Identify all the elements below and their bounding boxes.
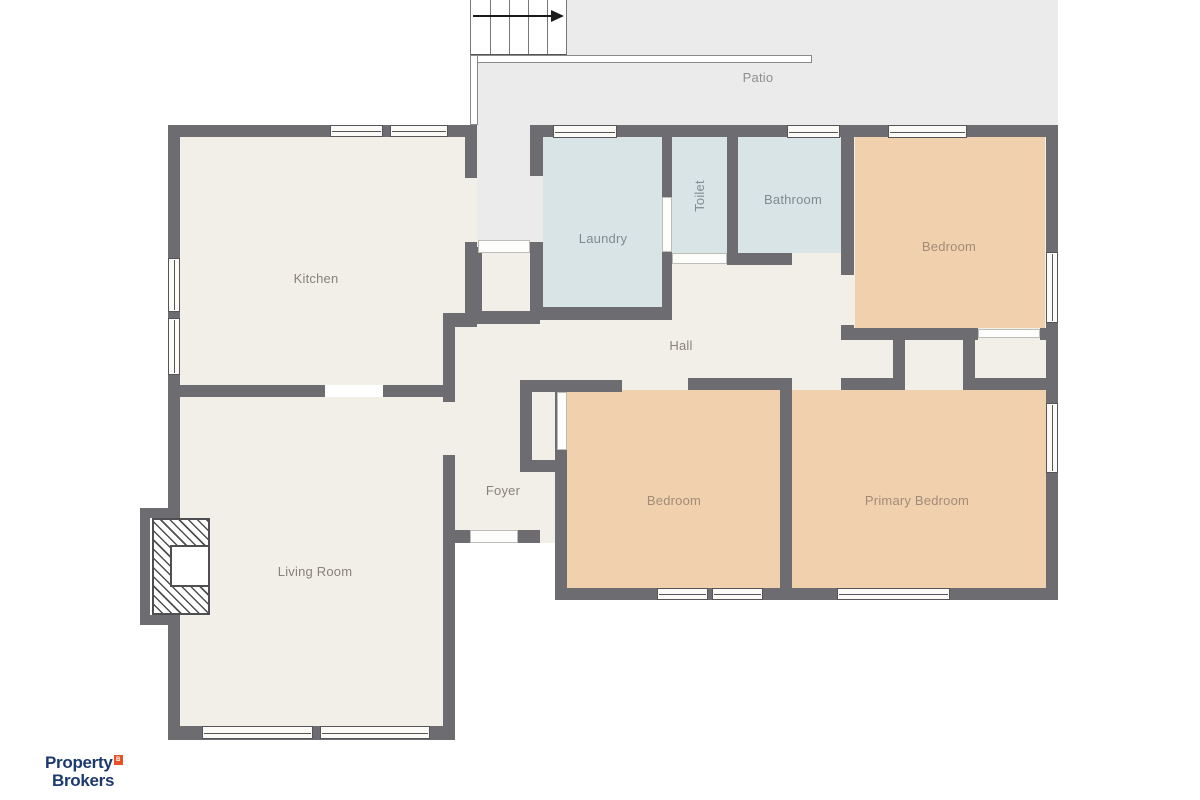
- room-label-foyer: Foyer: [443, 482, 563, 500]
- room-label-patio: Patio: [698, 69, 818, 87]
- stair-tread-line: [490, 0, 491, 54]
- rear-walkway: [477, 62, 530, 240]
- room-living-floor: [180, 397, 443, 727]
- kitchen-door-gap: [465, 178, 477, 242]
- wall: [567, 380, 622, 392]
- patio-deck-edge: [470, 55, 812, 63]
- room-label-bathroom: Bathroom: [733, 191, 853, 209]
- wall: [688, 378, 792, 390]
- stair-tread-line: [509, 0, 510, 54]
- door-opening: [557, 392, 567, 450]
- wall: [443, 327, 455, 402]
- door-opening: [478, 240, 530, 253]
- wall: [662, 137, 672, 197]
- room-laundry-floor: [543, 137, 662, 307]
- room-label-living-room: Living Room: [255, 563, 375, 581]
- room-bedroom-top-floor: [855, 137, 1045, 328]
- logo-text-property: Property: [45, 753, 113, 772]
- wall: [465, 125, 477, 178]
- stair-direction-arrow: [473, 15, 553, 17]
- wall: [843, 328, 978, 340]
- window: [390, 125, 448, 137]
- logo-text-brokers: Brokers: [52, 772, 123, 790]
- window: [168, 258, 180, 312]
- fireplace-firebox: [170, 545, 210, 587]
- window: [657, 588, 708, 600]
- property-brokers-logo: PropertyB Brokers: [45, 754, 123, 790]
- patio-deck-edge: [470, 55, 478, 125]
- window: [787, 125, 840, 138]
- room-label-bedroom-top: Bedroom: [889, 238, 1009, 256]
- wall: [443, 530, 470, 543]
- window: [712, 588, 763, 600]
- wall: [530, 125, 543, 176]
- wall: [180, 385, 325, 397]
- window: [888, 125, 967, 138]
- logo-badge-icon: B: [114, 755, 123, 765]
- window: [330, 125, 383, 137]
- wall: [518, 530, 540, 543]
- window: [202, 726, 313, 739]
- floorplan: PropertyB Brokers PatioKitchenLaundryToi…: [0, 0, 1200, 800]
- room-bedroom-bottom-floor: [567, 390, 780, 588]
- wall: [963, 378, 1058, 390]
- room-label-laundry: Laundry: [543, 230, 663, 248]
- window: [1046, 252, 1058, 323]
- wall: [555, 588, 1058, 600]
- window: [320, 726, 430, 739]
- window: [168, 318, 180, 375]
- room-label-primary-bedroom: Primary Bedroom: [857, 492, 977, 510]
- stair-tread-line: [528, 0, 529, 54]
- wall: [727, 253, 792, 265]
- wall: [520, 380, 532, 472]
- stair-tread-line: [547, 0, 548, 54]
- rear-walkway-gap: [530, 176, 543, 242]
- wall: [140, 508, 150, 625]
- door-opening: [662, 197, 672, 252]
- wall: [780, 380, 792, 600]
- room-label-toilet: Toilet: [691, 136, 709, 256]
- stair-arrow-head: [551, 10, 564, 22]
- staircase: [470, 0, 567, 55]
- window: [837, 588, 950, 600]
- room-label-hall: Hall: [621, 337, 741, 355]
- room-primary-bedroom-floor: [792, 390, 1046, 588]
- wall: [140, 615, 180, 625]
- logo-line1-row: PropertyB: [45, 754, 123, 772]
- door-opening: [978, 329, 1040, 338]
- window: [553, 125, 617, 138]
- room-label-bedroom-bottom: Bedroom: [614, 492, 734, 510]
- wall: [530, 307, 672, 320]
- wall: [168, 125, 180, 740]
- door-opening: [470, 530, 518, 543]
- room-label-kitchen: Kitchen: [256, 270, 376, 288]
- wall: [1046, 125, 1058, 600]
- window: [1046, 403, 1058, 473]
- wall: [841, 378, 900, 390]
- room-kitchen-floor: [180, 137, 465, 385]
